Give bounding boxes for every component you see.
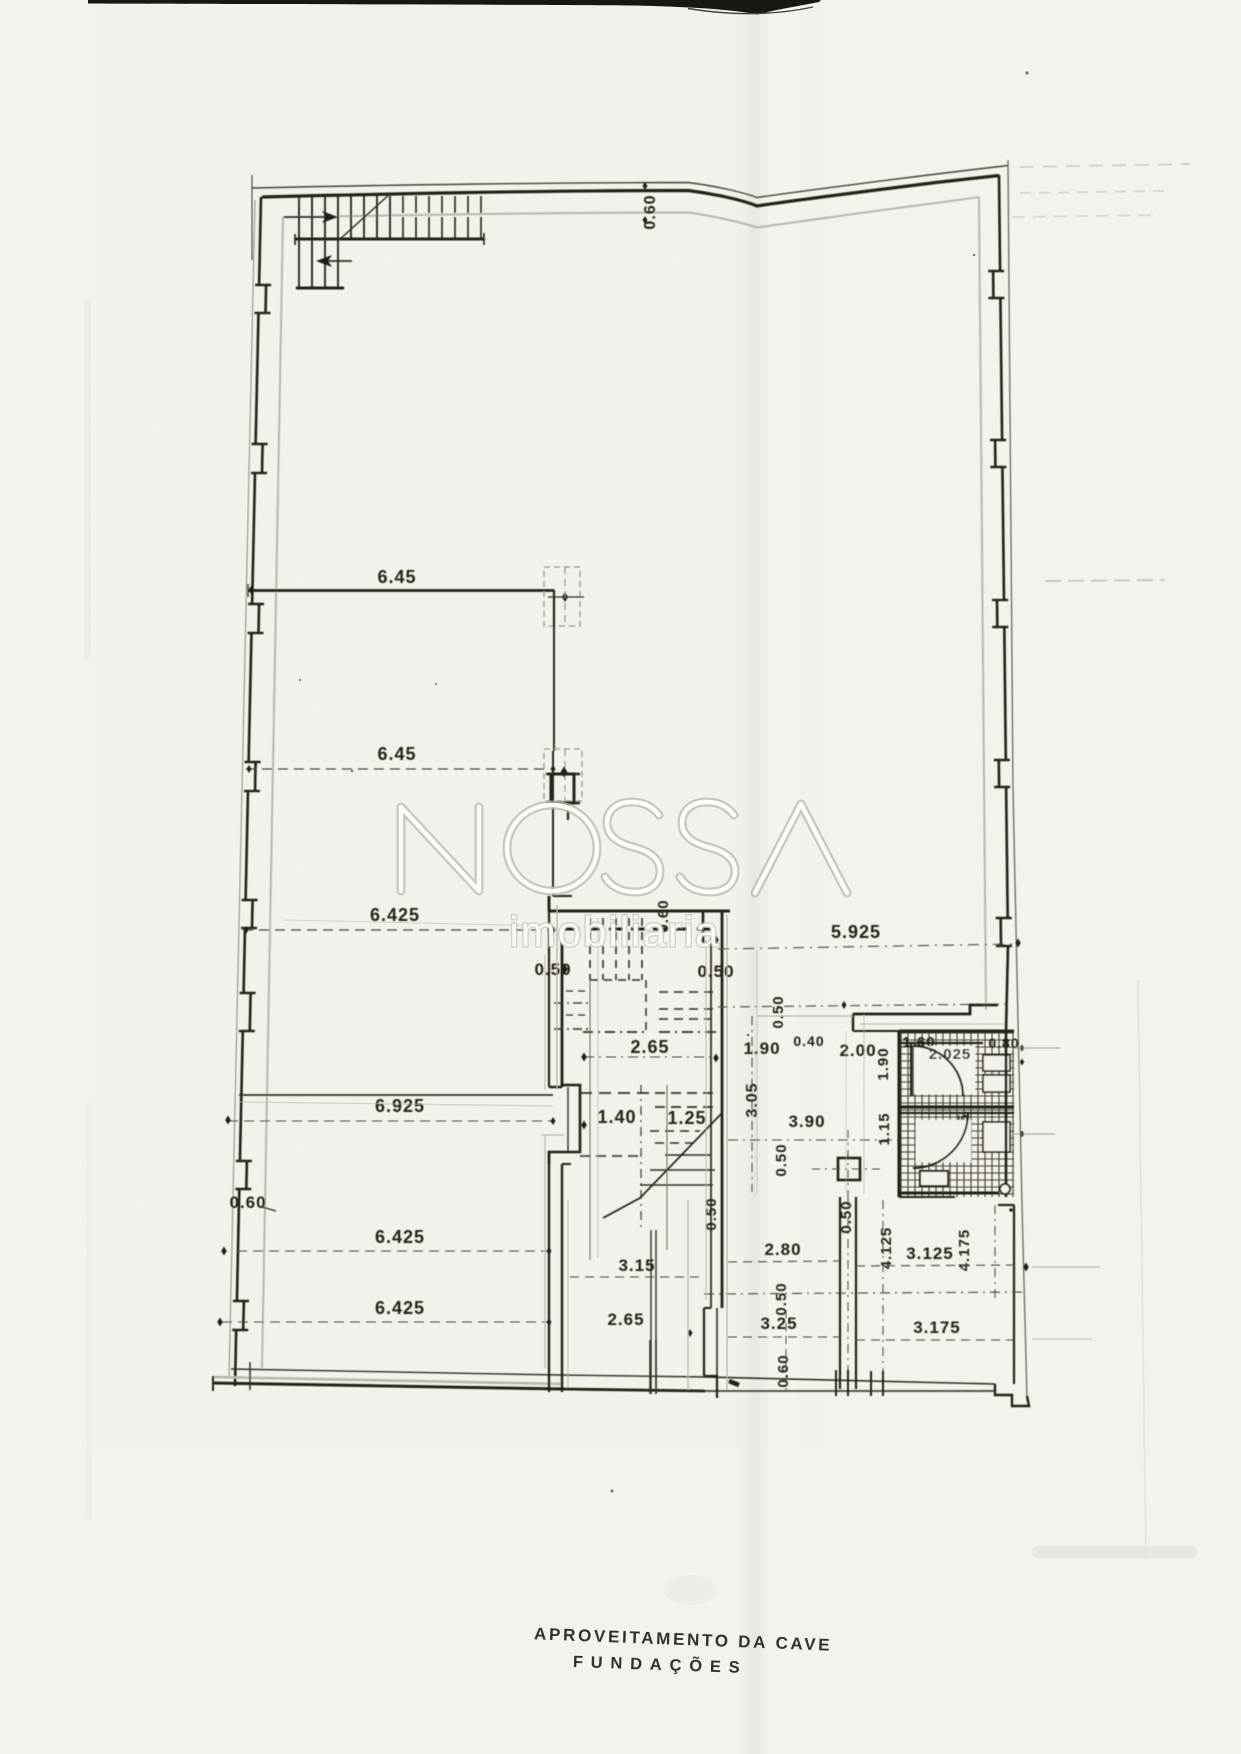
svg-text:0.80: 0.80 (988, 1035, 1019, 1051)
svg-text:2.80: 2.80 (764, 1240, 801, 1259)
svg-text:0.40: 0.40 (793, 1033, 824, 1049)
svg-text:3.125: 3.125 (906, 1244, 954, 1263)
svg-text:2.65: 2.65 (630, 1037, 669, 1057)
svg-text:6.925: 6.925 (375, 1096, 425, 1116)
svg-text:0.50: 0.50 (770, 995, 787, 1028)
svg-text:3.15: 3.15 (618, 1256, 655, 1275)
svg-text:0.50: 0.50 (838, 1200, 855, 1233)
svg-text:1.90: 1.90 (743, 1039, 780, 1058)
svg-text:2.025: 2.025 (929, 1046, 972, 1063)
svg-text:3.175: 3.175 (913, 1318, 961, 1337)
svg-text:6.425: 6.425 (375, 1227, 425, 1247)
svg-text:3.90: 3.90 (788, 1112, 825, 1131)
svg-text:0.60: 0.60 (642, 194, 659, 229)
svg-text:0.50: 0.50 (773, 1282, 790, 1315)
svg-text:1.15: 1.15 (876, 1112, 893, 1145)
svg-text:6.45: 6.45 (377, 744, 416, 764)
svg-text:4.125: 4.125 (878, 1227, 895, 1270)
svg-text:6.45: 6.45 (377, 567, 416, 587)
svg-text:0.60: 0.60 (229, 1193, 266, 1212)
svg-text:1.40: 1.40 (597, 1107, 636, 1127)
svg-text:2.00: 2.00 (839, 1041, 876, 1060)
svg-text:1.90: 1.90 (875, 1047, 892, 1080)
svg-text:2.65: 2.65 (607, 1310, 644, 1329)
svg-text:0.50: 0.50 (773, 1143, 790, 1176)
svg-text:5.925: 5.925 (831, 922, 881, 942)
svg-text:6.425: 6.425 (375, 1298, 425, 1318)
svg-text:1.25: 1.25 (667, 1108, 706, 1128)
svg-text:0.60: 0.60 (775, 1354, 792, 1387)
svg-text:3.25: 3.25 (760, 1314, 797, 1333)
svg-text:0.50: 0.50 (697, 962, 734, 981)
svg-text:imobiliaria: imobiliaria (509, 908, 720, 955)
